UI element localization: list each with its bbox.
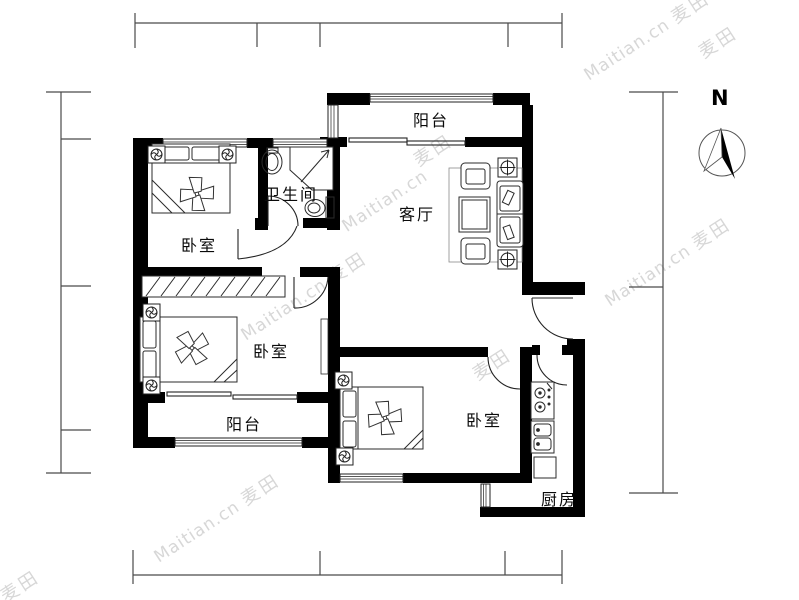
bed-southeast [340,387,423,449]
cabinet [321,319,328,374]
compass-north-label: N [711,86,729,110]
armchair [461,238,490,264]
side-table-lamp [498,158,517,177]
ac-unit-icon [335,372,352,389]
room-label-living-room: 客厅 [399,201,435,225]
side-table-lamp [498,250,517,269]
ac-unit-icon [143,377,160,394]
bedroom-se-door [488,357,520,389]
room-label-bedroom-northwest: 卧室 [181,232,217,256]
room-label-bathroom: 卫生间 [264,181,318,205]
kitchen-counter [534,457,556,478]
sliding-door-south [167,392,297,399]
wardrobe [142,276,285,297]
sofa [497,181,523,247]
ac-unit-icon [143,304,160,321]
stove [531,382,554,419]
ac-unit-icon [336,448,353,465]
floorplan-drawing [0,0,799,600]
sliding-door-north [349,138,465,145]
bed-west [140,317,237,382]
room-label-bedroom-southeast: 卧室 [466,407,502,431]
room-label-bedroom-west: 卧室 [253,338,289,362]
room-label-kitchen: 厨房 [541,486,577,510]
kitchen-sink [531,421,554,453]
armchair [461,163,490,189]
room-label-balcony-north: 阳台 [413,107,449,131]
ac-unit-icon [148,146,165,163]
ac-unit-icon [219,146,236,163]
compass-icon [699,128,745,179]
bedroom-w-door [294,277,328,308]
floorplan-canvas: Maitian.cn 麦田 Maitian.cn 麦田 Maitian.cn M… [0,0,799,600]
coffee-table [459,197,490,232]
entry-door [532,298,573,339]
kitchen-door [537,355,567,385]
bedroom-nw-door [238,226,297,259]
room-label-balcony-south: 阳台 [226,411,262,435]
